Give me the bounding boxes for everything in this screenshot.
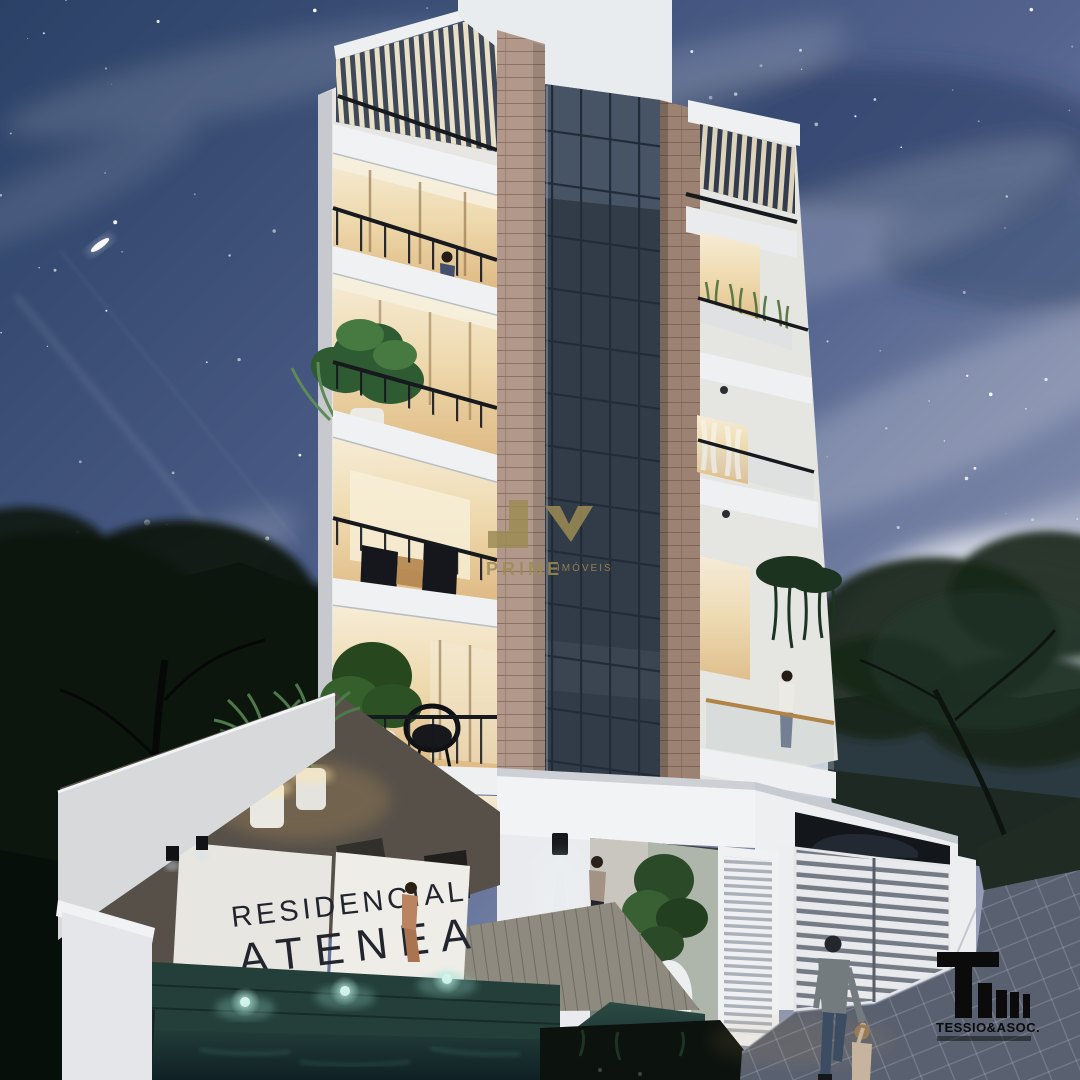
scene-svg: RESIDENCIAL ATENEA — [0, 0, 1080, 1080]
watermark-brand: PRIME — [486, 559, 563, 579]
wall-sconce — [166, 846, 179, 861]
walking-child — [852, 1025, 872, 1080]
monogram-j-foot — [488, 531, 511, 548]
monogram-j-stem — [509, 500, 528, 548]
ceiling-downlight — [720, 386, 728, 394]
watermark-suffix: IMÓVEIS — [557, 561, 613, 574]
logo-tagline-microtext — [937, 1036, 1031, 1041]
render-canvas: RESIDENCIAL ATENEA — [0, 0, 1080, 1080]
wall-sconce — [196, 836, 208, 850]
wall-pillar — [62, 912, 152, 1080]
gate-pillar — [779, 846, 795, 1010]
logo-text: TESSIO&ASOC. — [936, 1020, 1040, 1035]
